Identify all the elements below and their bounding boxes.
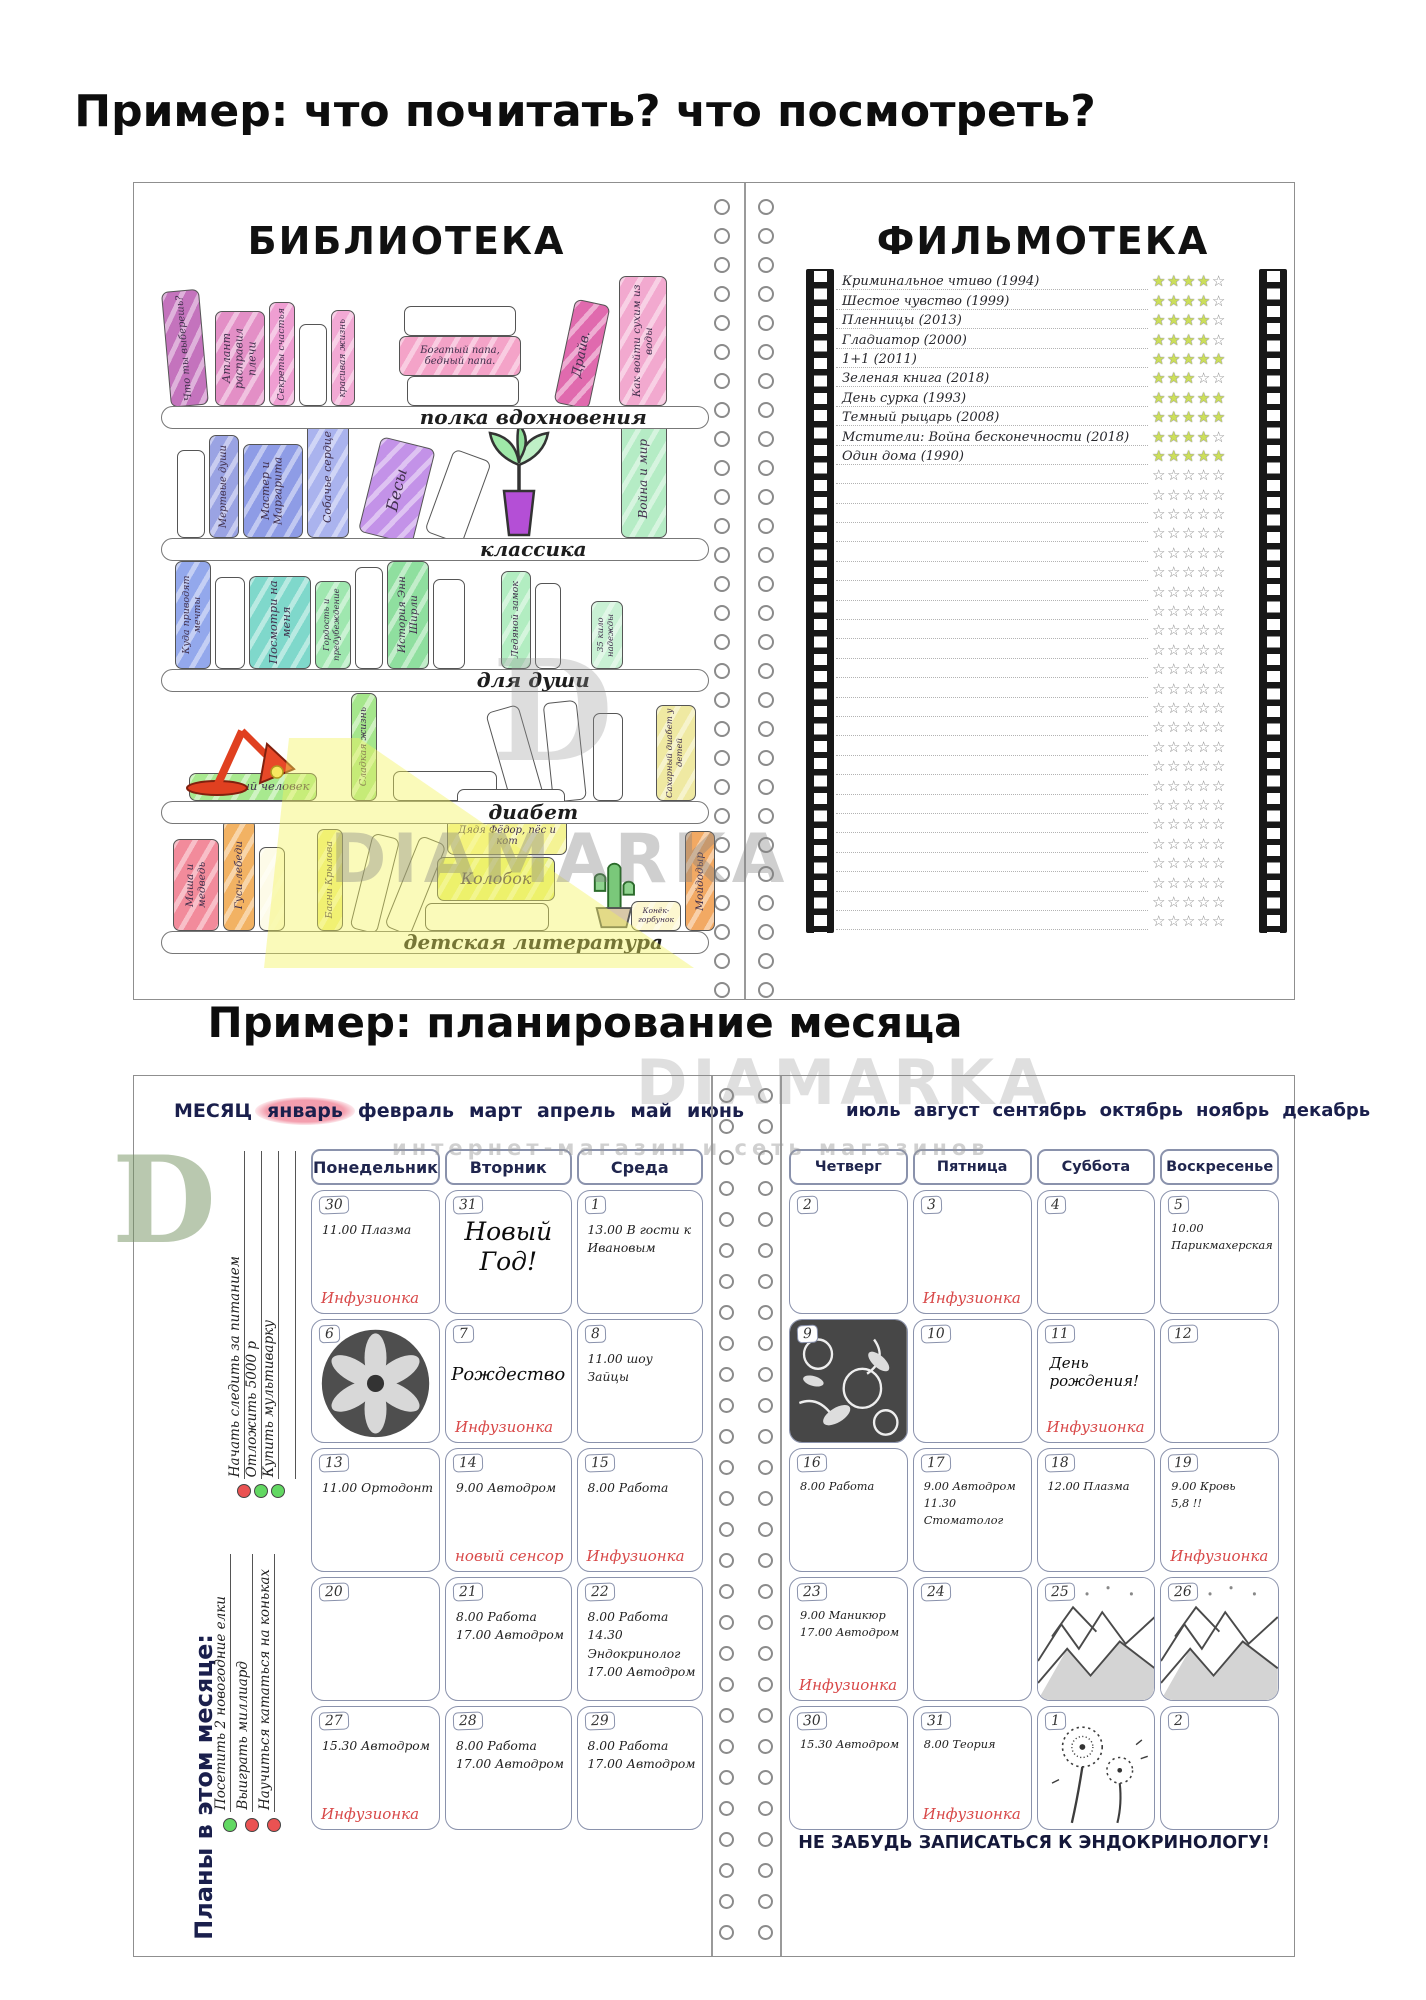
star-icon: ☆ [1197, 369, 1212, 387]
book-blank [593, 713, 623, 801]
goal-status-dot [254, 1484, 268, 1498]
star-icon: ★ [1197, 428, 1212, 446]
goal-status-dot [267, 1818, 281, 1832]
binder-ring-icon [719, 1212, 734, 1227]
star-icon: ☆ [1167, 893, 1182, 911]
reading-spread: БИБЛИОТЕКА Что ты выберешь?Атлант распра… [133, 182, 1295, 1000]
film-empty-row: ☆☆☆☆☆ [836, 717, 1254, 736]
star-icon: ★ [1197, 311, 1212, 329]
star-icon: ☆ [1152, 893, 1167, 911]
shelf-label: детская литература [162, 932, 708, 952]
binder-ring-icon [758, 982, 774, 998]
rating-stars: ☆☆☆☆☆ [1148, 467, 1252, 484]
binder-ring-icon [758, 489, 774, 505]
film-title: Криминальное чтиво (1994) [836, 271, 1148, 290]
book-title: Бесы [383, 467, 411, 513]
calendar-cell: 31Новый Год! [445, 1190, 571, 1314]
star-icon: ☆ [1167, 621, 1182, 639]
star-icon: ☆ [1182, 718, 1197, 736]
star-icon: ☆ [1182, 641, 1197, 659]
goal-status-dot [237, 1484, 251, 1498]
star-icon: ☆ [1212, 738, 1227, 756]
day-number: 12 [1168, 1324, 1198, 1343]
infusion-note: Инфузионка [1170, 1547, 1268, 1565]
book: История Энн Ширли [387, 561, 429, 669]
page-divider [711, 1076, 713, 1956]
infusion-note: Инфузионка [587, 1547, 685, 1565]
book-title: Война и мир [637, 439, 651, 519]
book-blank [543, 700, 587, 803]
film-title [836, 911, 1148, 930]
book-title: Секреты счастья [277, 308, 288, 401]
star-icon: ★ [1182, 350, 1197, 368]
binder-ring-icon [758, 257, 774, 273]
day-number: 21 [453, 1582, 483, 1601]
binder-ring-icon [758, 924, 774, 940]
star-icon: ☆ [1212, 369, 1227, 387]
star-icon: ★ [1212, 389, 1227, 407]
day-number: 27 [319, 1711, 349, 1730]
month-item: октябрь [1100, 1100, 1183, 1121]
book: Мертвые души [209, 435, 239, 538]
day-header-пятница: Пятница [913, 1149, 1032, 1185]
film-title [836, 698, 1148, 717]
book-title: Драйв. [570, 330, 594, 379]
event-line: 9.00 Автодром [924, 1479, 1026, 1496]
event-line: 9.00 Маникюр [800, 1608, 902, 1625]
book-title: Как войти сухим из воды [631, 277, 655, 405]
event-line: 8.00 Работа [456, 1608, 565, 1626]
months-row-left: МЕСЯЦянварьфевральмартапрельмайиюнь [174, 1100, 744, 1122]
book-title: Куда приводят мечты [182, 562, 204, 668]
film-entry: Темный рыцарь (2008)★★★★★ [836, 407, 1254, 426]
day-header-суббота: Суббота [1037, 1149, 1156, 1185]
rating-stars: ★★★★★ [1148, 390, 1252, 407]
rating-stars: ☆☆☆☆☆ [1148, 778, 1252, 795]
calendar-cell: 25 [1037, 1577, 1156, 1701]
star-icon: ☆ [1167, 874, 1182, 892]
event-line: 12.00 Плазма [1048, 1479, 1150, 1496]
star-icon: ★ [1152, 408, 1167, 426]
star-icon: ☆ [1212, 524, 1227, 542]
calendar-cell: 228.00 Работа14.30 Эндокринолог17.00 Авт… [577, 1577, 703, 1701]
page-divider [744, 183, 746, 999]
star-icon: ☆ [1212, 602, 1227, 620]
day-header-воскресенье: Воскресенье [1160, 1149, 1279, 1185]
film-title [836, 659, 1148, 678]
day-number: 3 [920, 1196, 942, 1215]
film-title [836, 620, 1148, 639]
day-number: 2 [797, 1196, 819, 1215]
holiday-note: Рождество [446, 1364, 570, 1386]
month-item: март [469, 1100, 522, 1122]
star-icon: ☆ [1182, 912, 1197, 930]
ruled-line [295, 1151, 296, 1479]
rating-stars: ☆☆☆☆☆ [1148, 564, 1252, 581]
goal-status-dot [245, 1818, 259, 1832]
day-number: 24 [920, 1582, 950, 1601]
film-title [836, 523, 1148, 542]
cell-events: 8.00 Теория [924, 1737, 1026, 1754]
star-icon: ☆ [1152, 524, 1167, 542]
film-title [836, 814, 1148, 833]
book-title: Что ты выберешь? [175, 295, 196, 401]
star-icon: ☆ [1212, 563, 1227, 581]
infusion-note: Инфузионка [923, 1805, 1021, 1823]
rating-stars: ☆☆☆☆☆ [1148, 758, 1252, 775]
star-icon: ☆ [1182, 854, 1197, 872]
infusion-note: Инфузионка [1047, 1418, 1145, 1436]
calendar-cell: 3Инфузионка [913, 1190, 1032, 1314]
binder-ring-icon [758, 1677, 773, 1692]
book-title: Посмотри на меня [267, 577, 293, 668]
day-number: 11 [1044, 1324, 1074, 1343]
binder-ring-icon [714, 228, 730, 244]
film-title: Зеленая книга (2018) [836, 368, 1148, 387]
event-line: 17.00 Автодром [588, 1755, 697, 1773]
star-icon: ☆ [1167, 680, 1182, 698]
day-header-понедельник: Понедельник [311, 1149, 440, 1185]
film-title [836, 756, 1148, 775]
binder-ring-icon [758, 1398, 773, 1413]
star-icon: ☆ [1152, 874, 1167, 892]
binder-ring-icon [758, 1553, 773, 1568]
film-empty-row: ☆☆☆☆☆ [836, 736, 1254, 755]
binder-ring-icon [758, 1305, 773, 1320]
star-icon: ☆ [1182, 583, 1197, 601]
day-number: 18 [1044, 1453, 1074, 1472]
binder-ring-icon [714, 199, 730, 215]
rating-stars: ☆☆☆☆☆ [1148, 642, 1252, 659]
star-icon: ☆ [1197, 563, 1212, 581]
star-icon: ☆ [1197, 912, 1212, 930]
binder-ring-icon [758, 692, 774, 708]
binder-ring-icon [719, 1615, 734, 1630]
day-number: 2 [1168, 1712, 1190, 1731]
star-icon: ☆ [1182, 796, 1197, 814]
event-line: 13.00 В гости к Ивановым [588, 1221, 697, 1258]
calendar-cell: 113.00 В гости к Ивановым [577, 1190, 703, 1314]
book-title: Колобок [461, 870, 532, 888]
binder-ring-icon [758, 1336, 773, 1351]
event-line: 17.00 Автодром [456, 1626, 565, 1644]
binder-ring-icon [758, 199, 774, 215]
film-title [836, 872, 1148, 891]
star-icon: ☆ [1212, 466, 1227, 484]
binder-ring-icon [758, 315, 774, 331]
goal-text: Посетить 2 новогодние елки [213, 1596, 229, 1810]
star-icon: ★ [1197, 447, 1212, 465]
film-title: Мстители: Война бесконечности (2018) [836, 426, 1148, 445]
book: Как войти сухим из воды [619, 276, 667, 406]
star-icon: ☆ [1167, 757, 1182, 775]
binder-ring-icon [719, 1739, 734, 1754]
film-title [836, 504, 1148, 523]
calendar-cell: 168.00 Работа [789, 1448, 908, 1572]
star-icon: ☆ [1197, 874, 1212, 892]
star-icon: ☆ [1182, 466, 1197, 484]
film-entry: 1+1 (2011)★★★★★ [836, 349, 1254, 368]
star-icon: ☆ [1182, 486, 1197, 504]
star-icon: ☆ [1167, 466, 1182, 484]
star-icon: ☆ [1212, 544, 1227, 562]
book-title: Дядя Фёдор, пёс и кот [448, 825, 566, 848]
book-blank [215, 577, 245, 669]
star-icon: ★ [1167, 350, 1182, 368]
binder-ring-icon [758, 1274, 773, 1289]
star-icon: ★ [1167, 272, 1182, 290]
star-icon: ☆ [1212, 757, 1227, 775]
month-item: декабрь [1282, 1100, 1370, 1121]
book: Колобок [437, 857, 555, 901]
star-icon: ☆ [1152, 641, 1167, 659]
event-line: 10.00 Парикмахерская [1171, 1221, 1273, 1255]
reminder-note: НЕ ЗАБУДЬ ЗАПИСАТЬСЯ К ЭНДОКРИНОЛОГУ! [789, 1833, 1279, 1853]
rating-stars: ☆☆☆☆☆ [1148, 525, 1252, 542]
film-title: Темный рыцарь (2008) [836, 407, 1148, 426]
day-number: 22 [584, 1582, 614, 1601]
film-title [836, 717, 1148, 736]
day-number: 28 [453, 1711, 483, 1730]
binder-ring-icon [719, 1398, 734, 1413]
binder-ring-icon [758, 1088, 773, 1103]
book-title: Атлант расправил плечи [221, 312, 259, 405]
book-blank [299, 324, 327, 406]
star-icon: ☆ [1167, 486, 1182, 504]
star-icon: ★ [1197, 389, 1212, 407]
rating-stars: ☆☆☆☆☆ [1148, 661, 1252, 678]
cell-events: 8.00 Работа [588, 1479, 697, 1497]
binder-ring-icon [758, 721, 774, 737]
film-empty-row: ☆☆☆☆☆ [836, 775, 1254, 794]
binder-ring-icon [758, 1708, 773, 1723]
event-line: 9.00 Автодром [456, 1479, 565, 1497]
calendar-cell: 12 [1160, 1319, 1279, 1443]
binder-ring-icon [719, 1181, 734, 1196]
binder-ring-icon [719, 1305, 734, 1320]
star-icon: ☆ [1197, 602, 1212, 620]
film-title [836, 484, 1148, 503]
rating-stars: ★★★★☆ [1148, 332, 1252, 349]
star-icon: ☆ [1152, 602, 1167, 620]
star-icon: ☆ [1212, 854, 1227, 872]
binder-ring-icon [758, 373, 774, 389]
star-icon: ☆ [1152, 466, 1167, 484]
star-icon: ☆ [1182, 835, 1197, 853]
book-title: красивая жизнь [338, 319, 348, 398]
calendar-spread: МЕСЯЦянварьфевральмартапрельмайиюнь июль… [133, 1075, 1295, 1957]
event-line: 11.00 шоу Зайцы [588, 1350, 697, 1387]
event-line: 17.00 Автодром [800, 1625, 902, 1642]
film-empty-row: ☆☆☆☆☆ [836, 620, 1254, 639]
star-icon: ★ [1167, 428, 1182, 446]
book: Драйв. [553, 299, 610, 410]
star-icon: ★ [1152, 292, 1167, 310]
book: Сладкая жизнь [351, 693, 377, 801]
shelf-label: полка вдохновения [162, 407, 708, 427]
day-number: 9 [797, 1325, 819, 1344]
day-number: 17 [920, 1453, 950, 1472]
shelf-label: диабет [162, 802, 708, 822]
rating-stars: ☆☆☆☆☆ [1148, 739, 1252, 756]
binder-ring-icon [758, 1646, 773, 1661]
star-icon: ☆ [1197, 524, 1212, 542]
binder-ring-icon [719, 1584, 734, 1599]
goal-item: Выиграть миллиард [233, 1554, 253, 1812]
star-icon: ☆ [1152, 854, 1167, 872]
star-icon: ★ [1167, 369, 1182, 387]
binder-ring-icon [758, 460, 774, 476]
day-number: 26 [1168, 1582, 1198, 1601]
book-title: История Энн Ширли [396, 562, 420, 668]
star-icon: ☆ [1167, 738, 1182, 756]
star-icon: ☆ [1212, 874, 1227, 892]
star-icon: ☆ [1182, 680, 1197, 698]
day-number: 31 [920, 1711, 950, 1730]
star-icon: ☆ [1197, 621, 1212, 639]
star-icon: ☆ [1212, 486, 1227, 504]
month-item: май [630, 1100, 672, 1122]
star-icon: ☆ [1197, 835, 1212, 853]
binder-ring-icon [758, 547, 774, 563]
filmstrip-right-icon [1259, 269, 1287, 933]
month-item: ноябрь [1196, 1100, 1269, 1121]
rating-stars: ☆☆☆☆☆ [1148, 797, 1252, 814]
binder-ring-icon [719, 1336, 734, 1351]
star-icon: ☆ [1212, 777, 1227, 795]
film-title [836, 601, 1148, 620]
month-label: МЕСЯЦ [174, 1100, 252, 1122]
star-icon: ★ [1152, 331, 1167, 349]
book-blank [425, 903, 549, 931]
film-empty-row: ☆☆☆☆☆ [836, 892, 1254, 911]
event-line: 15.30 Автодром [800, 1737, 902, 1754]
cell-events: 11.00 Плазма [322, 1221, 434, 1239]
star-icon: ☆ [1152, 544, 1167, 562]
day-number: 25 [1044, 1582, 1074, 1601]
star-icon: ☆ [1152, 738, 1167, 756]
binder-ring-icon [719, 1801, 734, 1816]
film-empty-row: ☆☆☆☆☆ [836, 542, 1254, 561]
calendar-cell: 24 [913, 1577, 1032, 1701]
star-icon: ☆ [1197, 893, 1212, 911]
calendar-cell: 1311.00 Ортодонт [311, 1448, 440, 1572]
binder-ring-icon [758, 837, 774, 853]
day-header-среда: Среда [577, 1149, 703, 1185]
book: Богатый папа, бедный папа. [399, 336, 521, 376]
rating-stars: ☆☆☆☆☆ [1148, 681, 1252, 698]
book-title: Мойдодыр [694, 852, 706, 911]
book-blank [259, 847, 285, 931]
infusion-note: Инфузионка [321, 1289, 419, 1307]
event-line: 14.30 Эндокринолог [588, 1626, 697, 1663]
rating-stars: ★★★★☆ [1148, 293, 1252, 310]
book: Война и мир [621, 420, 667, 538]
film-title [836, 639, 1148, 658]
cell-events: 9.00 Автодром [456, 1479, 565, 1497]
rating-stars: ☆☆☆☆☆ [1148, 855, 1252, 872]
cell-events: 8.00 Работа [800, 1479, 902, 1496]
event-line: 17.00 Автодром [456, 1755, 565, 1773]
film-title [836, 465, 1148, 484]
star-icon: ☆ [1152, 486, 1167, 504]
star-icon: ☆ [1197, 505, 1212, 523]
calendar-cell: 1 [1037, 1706, 1156, 1830]
rating-stars: ☆☆☆☆☆ [1148, 875, 1252, 892]
binder-ring-icon [758, 895, 774, 911]
calendar-cell: 199.00 Кровь5,8 !!Инфузионка [1160, 1448, 1279, 1572]
calendar-cell: 11День рождения!Инфузионка [1037, 1319, 1156, 1443]
binder-ring-icon [758, 750, 774, 766]
binder-ring-icon [719, 1243, 734, 1258]
star-icon: ☆ [1167, 777, 1182, 795]
cell-events: 8.00 Работа14.30 Эндокринолог17.00 Автод… [588, 1608, 697, 1682]
star-icon: ☆ [1212, 660, 1227, 678]
star-icon: ☆ [1167, 835, 1182, 853]
film-empty-row: ☆☆☆☆☆ [836, 756, 1254, 775]
day-number: 7 [453, 1325, 475, 1344]
calendar-cell: 288.00 Работа17.00 Автодром [445, 1706, 571, 1830]
rating-stars: ☆☆☆☆☆ [1148, 622, 1252, 639]
shelf-books: Что ты выберешь?Атлант расправил плечиСе… [161, 266, 717, 406]
binder-ring-icon [714, 953, 730, 969]
binder-ring-icon [758, 1429, 773, 1444]
star-icon: ☆ [1152, 757, 1167, 775]
goal-status-dot [223, 1818, 237, 1832]
holiday-note: День рождения! [1050, 1354, 1149, 1390]
book-title: Гордость и предубеждение [323, 582, 343, 668]
goal-text: Научиться кататься на коньках [257, 1569, 273, 1810]
star-icon: ☆ [1182, 874, 1197, 892]
binder-ring-icon [719, 1429, 734, 1444]
star-icon: ☆ [1197, 486, 1212, 504]
cell-events: 9.00 Автодром11.30 Стоматолог [924, 1479, 1026, 1530]
film-empty-row: ☆☆☆☆☆ [836, 814, 1254, 833]
day-number: 16 [797, 1453, 827, 1472]
star-icon: ☆ [1182, 602, 1197, 620]
event-line: 8.00 Работа [588, 1737, 697, 1755]
star-icon: ★ [1212, 350, 1227, 368]
day-number: 8 [584, 1325, 606, 1344]
rating-stars: ☆☆☆☆☆ [1148, 700, 1252, 717]
book: Басни Крылова [317, 829, 343, 931]
cell-events: 12.00 Плазма [1048, 1479, 1150, 1496]
day-number: 14 [453, 1453, 483, 1472]
rating-stars: ☆☆☆☆☆ [1148, 719, 1252, 736]
binder-ring-icon [758, 1584, 773, 1599]
star-icon: ★ [1182, 292, 1197, 310]
binder-ring-icon [758, 286, 774, 302]
event-line: 17.00 Автодром [588, 1663, 697, 1681]
film-title [836, 775, 1148, 794]
day-number: 13 [319, 1453, 349, 1472]
day-number: 29 [584, 1711, 614, 1730]
film-empty-row: ☆☆☆☆☆ [836, 911, 1254, 930]
star-icon: ☆ [1167, 505, 1182, 523]
binder-ring-icon [758, 808, 774, 824]
book: Что ты выберешь? [161, 289, 209, 408]
binder-ring-icon [758, 228, 774, 244]
star-icon: ☆ [1197, 777, 1212, 795]
event-line: 11.30 Стоматолог [924, 1496, 1026, 1530]
star-icon: ☆ [1152, 680, 1167, 698]
film-entry: День сурка (1993)★★★★★ [836, 387, 1254, 406]
star-icon: ☆ [1182, 563, 1197, 581]
calendar-cell: 3015.30 Автодром [789, 1706, 908, 1830]
binder-ring-icon [719, 1119, 734, 1134]
book: Атлант расправил плечи [215, 311, 265, 406]
star-icon: ☆ [1152, 660, 1167, 678]
